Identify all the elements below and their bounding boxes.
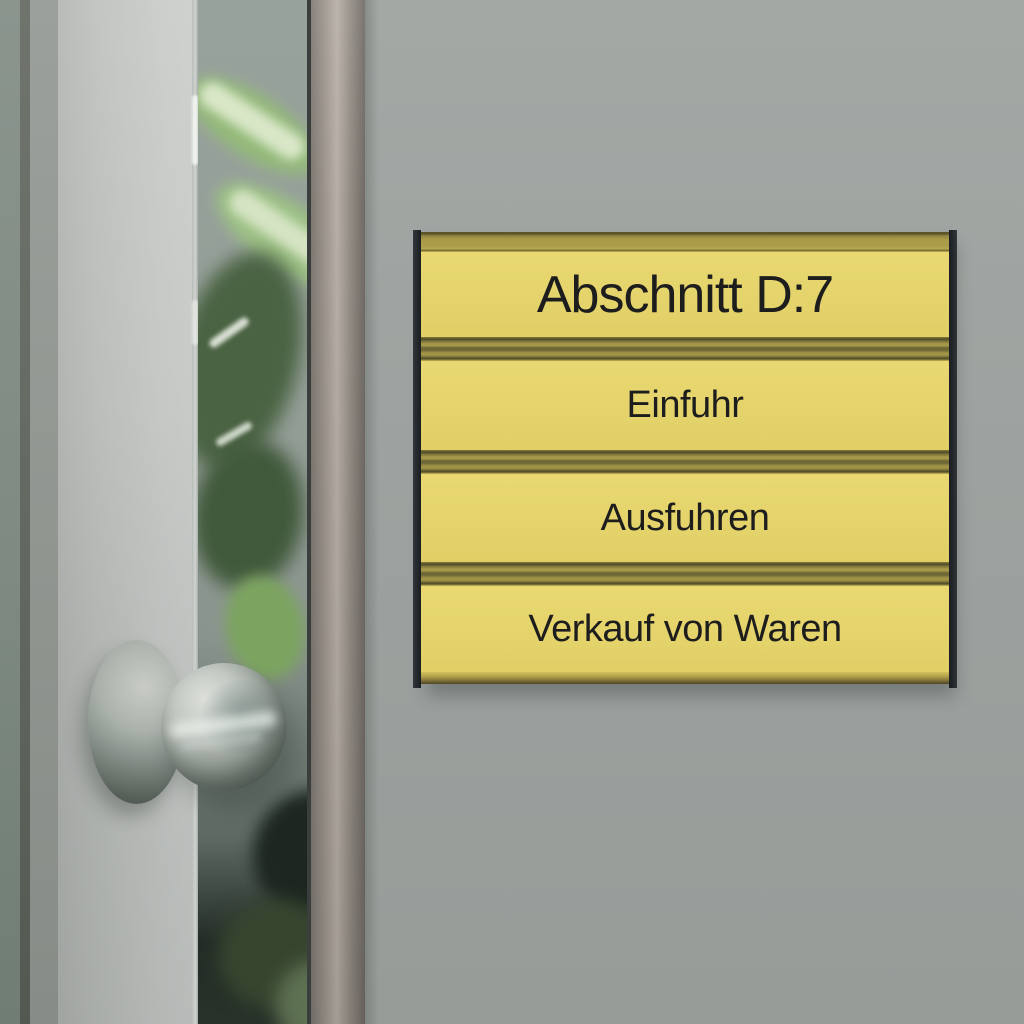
sign-row-label: Einfuhr: [627, 384, 744, 427]
sign-groove: [421, 450, 949, 474]
sign-rail-right: [949, 230, 957, 688]
sign-row-label: Ausfuhren: [601, 497, 770, 540]
metal-door-frame: [311, 0, 365, 1024]
sign-row-label: Verkauf von Waren: [528, 608, 841, 651]
door-frame-reveal-dark: [20, 0, 30, 1024]
door-panel: [58, 0, 195, 1024]
plant-leaf-dark: [198, 433, 307, 597]
wall-left-strip: [0, 0, 20, 1024]
door-frame-reveal-light: [30, 0, 58, 1024]
sign-title: Abschnitt D:7: [537, 265, 833, 325]
sign-groove: [421, 562, 949, 586]
sign-panel-stack: Abschnitt D:7 Einfuhr Ausfuhren Verkauf …: [421, 232, 949, 684]
sign-row-panel: Einfuhr: [421, 361, 949, 450]
door-knob: [161, 663, 287, 791]
frame-wall-shadow: [365, 0, 379, 1024]
glass-sidelight: [198, 0, 307, 1024]
door-sign: Abschnitt D:7 Einfuhr Ausfuhren Verkauf …: [413, 230, 957, 688]
photo-scene: Abschnitt D:7 Einfuhr Ausfuhren Verkauf …: [0, 0, 1024, 1024]
sign-bottom-strip: [421, 672, 949, 684]
sign-row-panel: Ausfuhren: [421, 474, 949, 562]
sign-top-strip: [421, 232, 949, 252]
sign-row-panel: Verkauf von Waren: [421, 586, 949, 672]
sign-rail-left: [413, 230, 421, 688]
sign-groove: [421, 337, 949, 361]
sign-title-panel: Abschnitt D:7: [421, 252, 949, 337]
